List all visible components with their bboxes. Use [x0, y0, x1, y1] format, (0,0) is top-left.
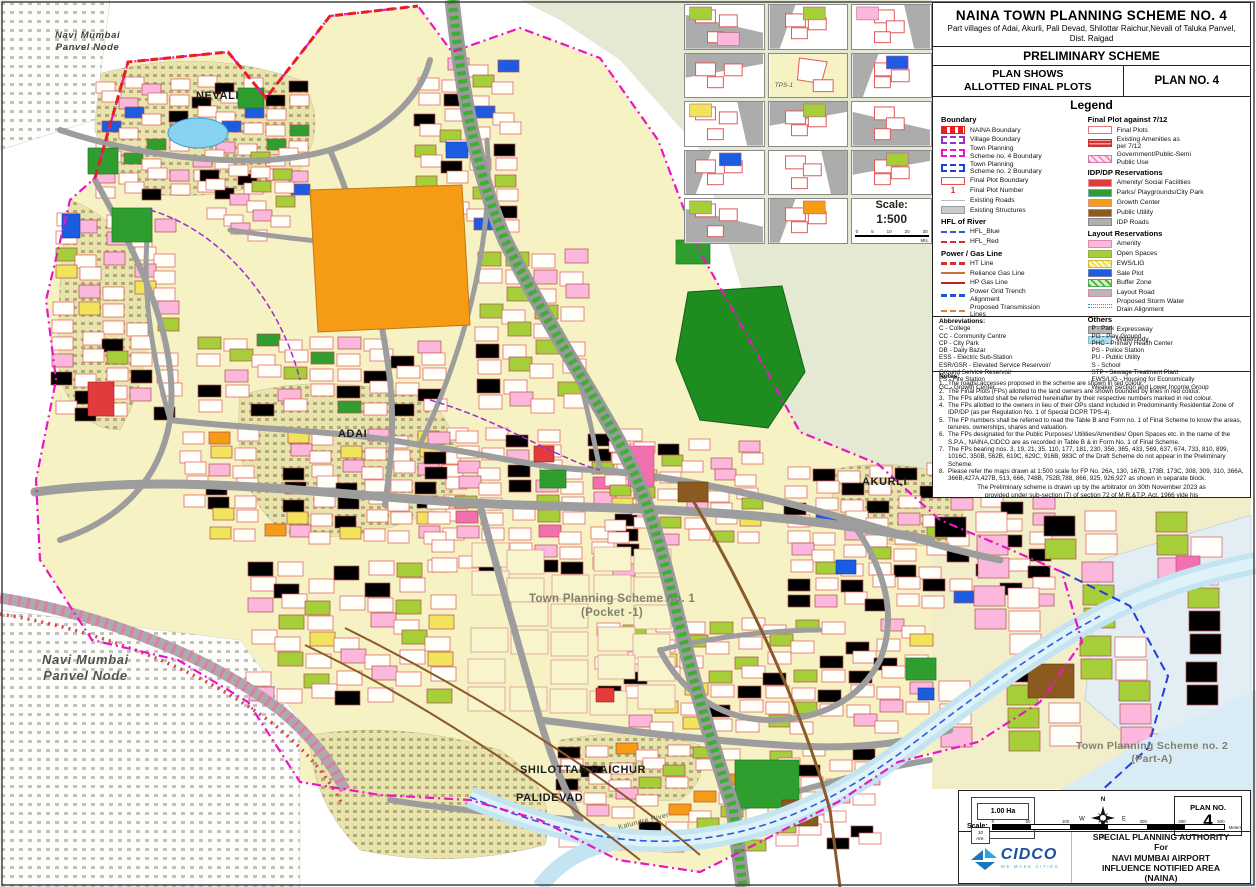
legend-item: Town Planning Scheme no. 2 Boundary	[941, 161, 1088, 176]
text-line: P - Park	[1092, 325, 1245, 332]
village-swatch-icon	[941, 136, 965, 144]
ews-swatch-icon	[1088, 260, 1112, 268]
notes: Notes: 1.The roads/ accesses proposed in…	[933, 371, 1250, 498]
legend-heading-hfl: HFL of River	[941, 217, 1088, 226]
naina-swatch-icon	[941, 126, 965, 134]
legend-label: Sale Plot	[1117, 270, 1144, 278]
area-scale-box: 1.00 Ha 10 Are.	[971, 797, 1035, 839]
hfl-blue-swatch-icon	[941, 231, 965, 233]
legend-label: EWS/LIG	[1117, 260, 1145, 268]
note-item: 5.The FP numbers shall be referred to re…	[939, 417, 1244, 432]
arbitrator-statement: The Preliminary scheme is drawn up by th…	[939, 484, 1244, 498]
legend-label: Final Plot Number	[970, 187, 1024, 195]
text-line: CP - City Park	[939, 340, 1092, 347]
legend-label: Power Grid Trench Alignment	[970, 288, 1026, 303]
reliance-gas-swatch-icon	[941, 272, 965, 274]
inset-cell-map	[851, 101, 932, 147]
plan-number-label: PLAN NO. 4	[1124, 66, 1250, 96]
inset-cell-map	[684, 4, 765, 50]
legend-item: Growth Center	[1088, 198, 1246, 207]
grid-trench-swatch-icon	[941, 294, 965, 297]
legend-label: Existing Roads	[970, 197, 1015, 205]
inset-cell-map	[684, 198, 765, 244]
legend-label: HFL_Red	[970, 238, 999, 246]
utility-swatch-icon	[1088, 209, 1112, 217]
legend-label: Village Boundary	[970, 136, 1020, 144]
cidco-tagline: WE MAKE CITIES	[1001, 864, 1060, 869]
ex-roads-swatch-icon	[941, 200, 965, 201]
text-line: DB - Daily Bazar	[939, 347, 1092, 354]
sale-swatch-icon	[1088, 269, 1112, 277]
legend-item: HP Gas Line	[941, 279, 1088, 288]
open-spaces-swatch-icon	[1088, 250, 1112, 258]
tps2-swatch-icon	[941, 164, 965, 172]
notes-list: 1.The roads/ accesses proposed in the sc…	[939, 380, 1244, 482]
scale-label: Scale:	[967, 823, 988, 830]
legend-label: Open Spaces	[1117, 250, 1158, 258]
legend-heading-boundary: Boundary	[941, 115, 1088, 124]
legend-item: Final Plot Boundary	[941, 177, 1088, 186]
final-plots-swatch-icon	[1088, 126, 1112, 134]
legend-item: Government/Public-Semi Public Use	[1088, 151, 1246, 166]
tps4-swatch-icon	[941, 149, 965, 157]
legend-item: EWS/LIG	[1088, 259, 1246, 268]
legend-label: HT Line	[970, 260, 993, 268]
legend-item: NAINA Boundary	[941, 126, 1088, 135]
legend: Boundary NAINA BoundaryVillage BoundaryT…	[933, 113, 1250, 316]
legend-item: Buffer Zone	[1088, 279, 1246, 288]
legend-label: NAINA Boundary	[970, 127, 1021, 135]
legend-label: Town Planning Scheme no. 2 Boundary	[970, 161, 1042, 176]
legend-label: Amenity	[1117, 240, 1141, 248]
note-item: 3.The FPs allotted shall be referred her…	[939, 395, 1244, 402]
parks-swatch-icon	[1088, 189, 1112, 197]
prop-trans-swatch-icon	[941, 310, 965, 312]
legend-label: Public Utility	[1117, 209, 1153, 217]
hectare-box: 1.00 Ha	[977, 803, 1029, 820]
legend-heading-layout: Layout Reservations	[1088, 229, 1246, 238]
legend-item: Village Boundary	[941, 136, 1088, 145]
legend-item: Existing Structures	[941, 206, 1088, 215]
legend-item: HFL_Blue	[941, 228, 1088, 237]
legend-label: HFL_Blue	[970, 228, 1000, 236]
growth-swatch-icon	[1088, 199, 1112, 207]
legend-label: Government/Public-Semi Public Use	[1117, 151, 1191, 166]
legend-item: Reliance Gas Line	[941, 269, 1088, 278]
legend-label: Final Plot Boundary	[970, 177, 1028, 185]
legend-item: Existing Amenities as per 7/12	[1088, 136, 1246, 151]
legend-section-idp-dp: Amenity/ Social FacilitiesParks/ Playgro…	[1088, 179, 1246, 227]
legend-label: Growth Center	[1117, 199, 1161, 207]
text-line: S - School	[1092, 362, 1245, 369]
fp-number-swatch-icon: 1	[941, 187, 965, 195]
inset-cell-map	[851, 150, 932, 196]
legend-title: Legend	[933, 97, 1250, 113]
text-line: PHC - Primary Health Center	[1092, 340, 1245, 347]
inset-cell-map	[684, 53, 765, 99]
ex-structures-swatch-icon	[941, 206, 965, 214]
note-item: 6.The FPs designated for the Public Purp…	[939, 431, 1244, 446]
scale-unit: Meters	[1229, 825, 1242, 830]
text-line: (NAINA)	[1072, 873, 1250, 883]
cidco-logo-icon	[971, 846, 997, 870]
buffer-swatch-icon	[1088, 279, 1112, 287]
legend-label: Town Planning Scheme no. 4 Boundary	[970, 145, 1042, 160]
legend-item: IDP Roads	[1088, 218, 1246, 227]
note-item: 2.The Final Plots (FPs) allotted to the …	[939, 388, 1244, 395]
text-line: PG - Play Ground	[1092, 333, 1245, 340]
idp-roads-swatch-icon	[1088, 218, 1112, 226]
amenity-swatch-icon	[1088, 240, 1112, 248]
amenity-social-swatch-icon	[1088, 179, 1112, 187]
legend-item: HT Line	[941, 259, 1088, 268]
detail-inset-grid: TPS-1Scale:1:50005102030Mts.	[684, 4, 932, 244]
inset-cell-map	[768, 4, 849, 50]
svg-text:S: S	[1101, 835, 1105, 841]
legend-item: Open Spaces	[1088, 249, 1246, 258]
legend-section-hfl: HFL_BlueHFL_Red	[941, 228, 1088, 247]
legend-label: Layout Road	[1117, 289, 1155, 297]
legend-label: HP Gas Line	[970, 279, 1008, 287]
legend-item: Power Grid Trench Alignment	[941, 288, 1088, 303]
legend-section-final-plot: Final PlotsExisting Amenities as per 7/1…	[1088, 126, 1246, 166]
legend-label: Amenity/ Social Facilities	[1117, 179, 1191, 187]
legend-label: Buffer Zone	[1117, 279, 1152, 287]
legend-label: Proposed Storm Water Drain Alignment	[1117, 298, 1185, 313]
legend-item: Public Utility	[1088, 208, 1246, 217]
inset-cell-tps1: TPS-1	[768, 53, 849, 99]
note-item: 1.The roads/ accesses proposed in the sc…	[939, 380, 1244, 387]
legend-item: Layout Road	[1088, 288, 1246, 297]
legend-heading-final-plot: Final Plot against 7/12	[1088, 115, 1246, 124]
legend-item: HFL_Red	[941, 237, 1088, 246]
ht-line-swatch-icon	[941, 262, 965, 265]
layout-road-swatch-icon	[1088, 289, 1112, 297]
scheme-title: NAINA TOWN PLANNING SCHEME NO. 4	[933, 8, 1250, 23]
text-line: PU - Public Utility	[1092, 354, 1245, 361]
cidco-logo-text: CIDCO	[1001, 846, 1060, 864]
ex-amenities-swatch-icon	[1088, 139, 1112, 147]
plan-shows: PLAN SHOWS ALLOTTED FINAL PLOTS	[933, 66, 1124, 96]
notes-heading: Notes:	[939, 373, 1244, 380]
title-legend-panel: NAINA TOWN PLANNING SCHEME NO. 4 Part vi…	[932, 2, 1251, 498]
text-line: NAVI MUMBAI AIRPORT	[1072, 853, 1250, 863]
inset-cell-map	[684, 150, 765, 196]
plan-sheet: NEVALI ADAI AKURLI SHILOTTAR RAICHUR PAL…	[0, 0, 1256, 887]
text-line: PS - Police Station	[1092, 347, 1245, 354]
legend-heading-idp-dp: IDP/DP Reservations	[1088, 168, 1246, 177]
inset-cell-map	[768, 150, 849, 196]
inset-cell-map	[768, 198, 849, 244]
legend-label: Reliance Gas Line	[970, 270, 1025, 278]
legend-label: Existing Structures	[970, 207, 1026, 215]
legend-item: Sale Plot	[1088, 269, 1246, 278]
hfl-red-swatch-icon	[941, 241, 965, 243]
legend-label: Parks/ Playgrounds/City Park	[1117, 189, 1204, 197]
note-item: 8.Please refer the maps drawn at 1:500 s…	[939, 468, 1244, 483]
text-line: INFLUENCE NOTIFIED AREA	[1072, 863, 1250, 873]
legend-item: Parks/ Playgrounds/City Park	[1088, 188, 1246, 197]
scheme-subtitle: Part villages of Adai, Akurli, Pali Deva…	[943, 24, 1240, 44]
inset-cell-map	[684, 101, 765, 147]
legend-label: Final Plots	[1117, 127, 1148, 135]
storm-swatch-icon	[1088, 304, 1112, 308]
abbreviations-heading: Abbreviations:	[939, 318, 1244, 325]
legend-item: Existing Roads	[941, 196, 1088, 205]
legend-item: Final Plots	[1088, 126, 1246, 135]
text-line: CC - Community Centre	[939, 333, 1092, 340]
map-scale-bar: Scale: 050100200300400500 Meters	[967, 819, 1242, 830]
hp-gas-swatch-icon	[941, 282, 965, 284]
inset-cell-map	[851, 53, 932, 99]
legend-section-layout: AmenityOpen SpacesEWS/LIGSale PlotBuffer…	[1088, 239, 1246, 313]
legend-section-power-gas: HT LineReliance Gas LineHP Gas LinePower…	[941, 259, 1088, 319]
nevali-lake	[168, 118, 228, 148]
legend-item: Town Planning Scheme no. 4 Boundary	[941, 145, 1088, 160]
note-item: 4.The FPs allotted to the owners in lieu…	[939, 402, 1244, 417]
note-item: 7.The FPs bearing nos. 3, 19, 21, 35, 11…	[939, 446, 1244, 468]
svg-text:N: N	[1101, 796, 1106, 803]
authority-block: 1.00 Ha 10 Are. N E S W PLAN NO.	[958, 790, 1251, 884]
legend-label: Existing Amenities as per 7/12	[1117, 136, 1180, 151]
legend-item: Proposed Storm Water Drain Alignment	[1088, 298, 1246, 313]
abbreviations: Abbreviations: C - CollegeCC - Community…	[933, 316, 1250, 371]
text-line: ESS - Electric Sub-Station	[939, 354, 1092, 361]
legend-section-boundary: NAINA BoundaryVillage BoundaryTown Plann…	[941, 126, 1088, 215]
legend-item: 1Final Plot Number	[941, 186, 1088, 195]
inset-scale-box: Scale:1:50005102030Mts.	[851, 198, 932, 244]
inset-cell-map	[768, 101, 849, 147]
fp-boundary-swatch-icon	[941, 177, 965, 185]
scheme-type: PRELIMINARY SCHEME	[933, 47, 1250, 65]
text-line: ESR/GSR - Elevated Service Reservoir/	[939, 362, 1092, 369]
govt-public-swatch-icon	[1088, 155, 1112, 163]
legend-item: Amenity/ Social Facilities	[1088, 179, 1246, 188]
legend-label: IDP Roads	[1117, 219, 1149, 227]
legend-heading-power-gas: Power / Gas Line	[941, 249, 1088, 258]
text-line: C - College	[939, 325, 1092, 332]
inset-cell-map	[851, 4, 932, 50]
legend-item: Amenity	[1088, 239, 1246, 248]
